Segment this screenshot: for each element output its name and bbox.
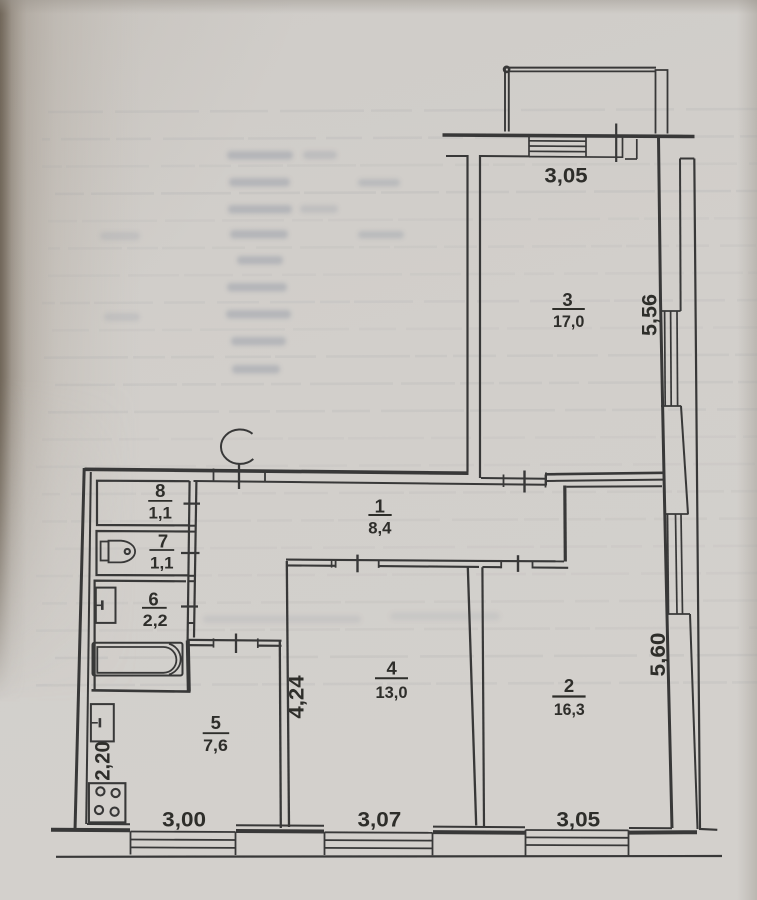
svg-text:5,56: 5,56 <box>637 294 661 336</box>
svg-text:3,05: 3,05 <box>544 163 587 187</box>
svg-text:5: 5 <box>211 712 221 733</box>
svg-text:13,0: 13,0 <box>375 683 407 702</box>
svg-text:2,20: 2,20 <box>90 741 114 781</box>
svg-text:4,24: 4,24 <box>285 675 309 718</box>
svg-text:17,0: 17,0 <box>553 312 585 331</box>
svg-text:2,2: 2,2 <box>143 611 168 630</box>
svg-text:3,05: 3,05 <box>556 807 600 831</box>
svg-text:16,3: 16,3 <box>554 700 585 719</box>
svg-text:7,6: 7,6 <box>203 736 228 755</box>
svg-text:1,1: 1,1 <box>148 504 172 523</box>
svg-text:6: 6 <box>148 588 158 609</box>
svg-text:7: 7 <box>158 530 168 551</box>
svg-text:8,4: 8,4 <box>368 519 392 538</box>
svg-text:8: 8 <box>155 480 165 501</box>
svg-text:3,07: 3,07 <box>358 808 402 832</box>
svg-text:3,00: 3,00 <box>162 807 206 831</box>
svg-text:4: 4 <box>387 657 398 678</box>
svg-text:1,1: 1,1 <box>150 553 174 572</box>
svg-text:5,60: 5,60 <box>646 632 670 676</box>
svg-text:2: 2 <box>564 675 574 696</box>
svg-text:3: 3 <box>562 289 572 310</box>
svg-text:1: 1 <box>375 496 385 517</box>
